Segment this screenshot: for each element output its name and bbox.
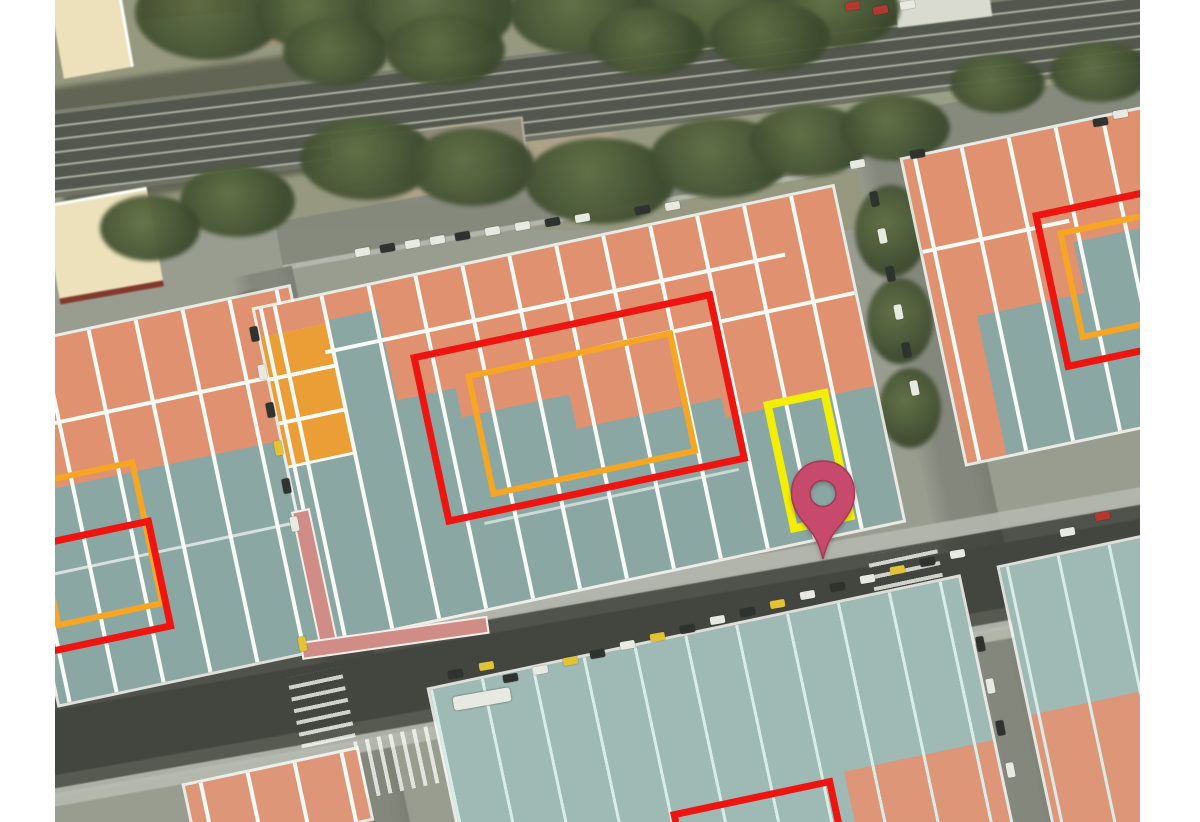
tree [410, 128, 535, 206]
vehicle [404, 239, 420, 249]
vehicle [454, 231, 470, 241]
vehicle [429, 235, 445, 245]
tree [950, 55, 1045, 113]
building-cream [55, 0, 134, 79]
vehicle [379, 243, 395, 253]
tree [100, 195, 200, 261]
tree [283, 18, 388, 86]
page-margin-left [0, 0, 55, 822]
map-pin-icon[interactable] [788, 458, 858, 564]
tree [840, 95, 950, 161]
tree [590, 8, 705, 76]
tree [1050, 42, 1140, 102]
aerial-map[interactable] [55, 0, 1140, 822]
tree [879, 368, 941, 448]
map-canvas[interactable] [0, 0, 1200, 822]
map-pin-shape [792, 461, 855, 559]
page-margin-right [1140, 0, 1200, 822]
tree [867, 278, 933, 364]
tree [710, 2, 830, 72]
tree [385, 14, 505, 86]
parcel-zone-salmon [844, 740, 1014, 822]
vehicle [354, 247, 370, 257]
vehicle [484, 226, 500, 236]
